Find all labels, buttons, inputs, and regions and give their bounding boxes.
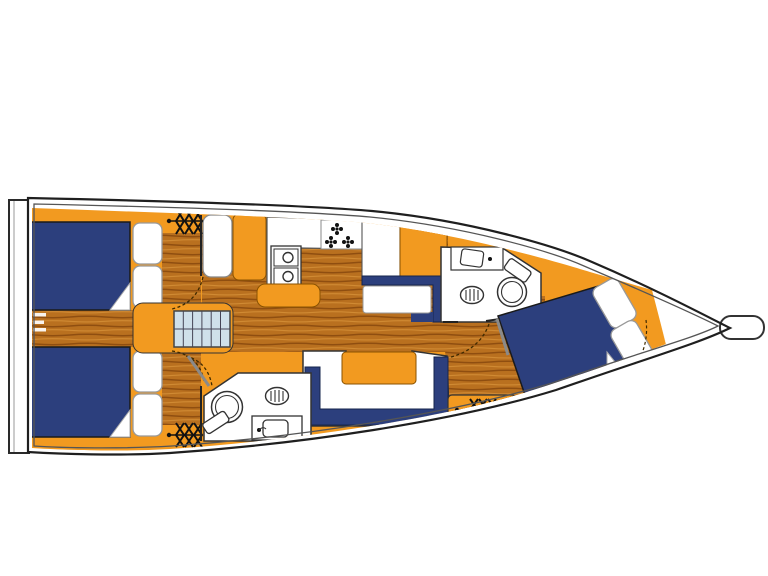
aft-head-basin — [263, 420, 288, 437]
pillow — [133, 223, 162, 264]
galley-stove — [321, 220, 362, 249]
aft-cabin-top-berth — [30, 222, 130, 310]
galley-island-top — [363, 286, 431, 313]
pillow — [133, 351, 162, 392]
boat-floorplan — [0, 0, 768, 576]
interior — [26, 200, 760, 460]
pillow — [133, 266, 162, 308]
salon-table — [342, 352, 416, 384]
nav-counter — [362, 219, 400, 277]
galley-cabinet — [233, 214, 266, 280]
aft-head-sink-oval-icon — [266, 388, 289, 405]
galley-bench — [257, 284, 320, 307]
forward-head-faucet-icon — [488, 257, 492, 261]
galley-sink — [271, 246, 301, 288]
swim-platform — [9, 200, 29, 453]
aft-cabin-bottom-floor — [162, 347, 201, 425]
galley-shelf-locker — [203, 215, 232, 277]
forward-head-basin — [460, 249, 484, 268]
floorplan-canvas — [0, 0, 768, 576]
aft-cabin-top-floor — [162, 233, 201, 311]
forward-head-sink-oval-icon — [461, 287, 484, 304]
aft-cabin-bottom-berth — [30, 347, 130, 437]
pillow — [133, 394, 162, 436]
